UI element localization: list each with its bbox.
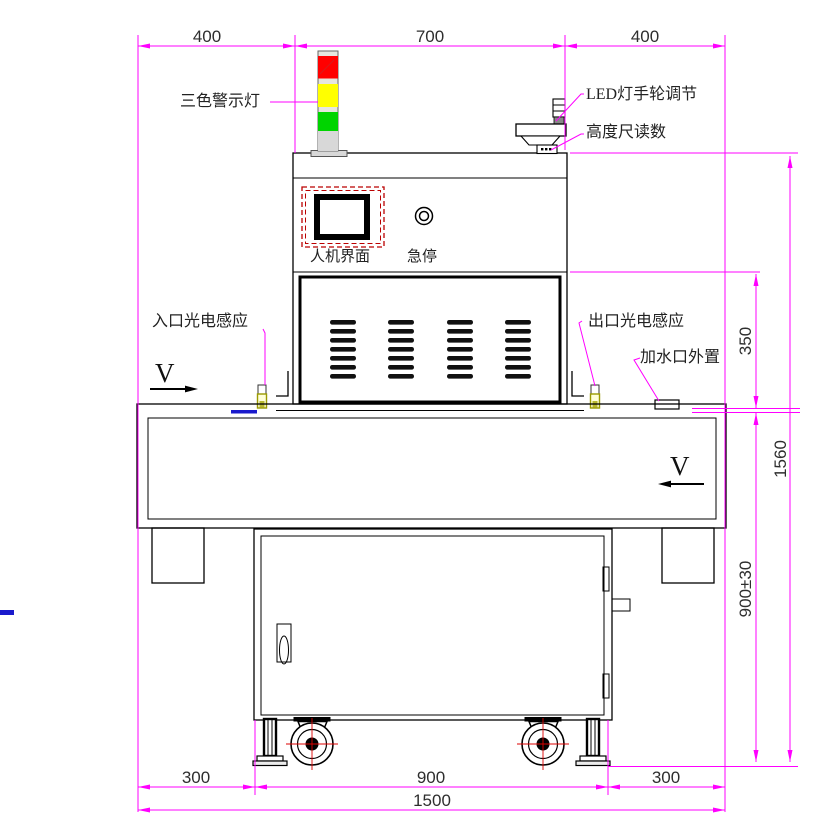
flow-arrowhead-left-pointing <box>658 481 671 488</box>
vented-cabinet <box>300 277 560 402</box>
flow-arrow-left: V <box>150 358 198 392</box>
warning-light-yellow-segment <box>318 84 338 107</box>
cabinet-door <box>261 536 604 715</box>
dim-top-left: 400 <box>193 27 221 46</box>
extension-lines <box>138 35 800 812</box>
left-leveling-foot <box>253 719 287 766</box>
outlet-rail-bracket <box>572 371 584 396</box>
label-warning-light: 三色警示灯 <box>180 92 260 110</box>
right-support-block <box>662 528 714 583</box>
hmi-screen <box>302 187 384 247</box>
tower-post <box>318 131 338 151</box>
dim-right-upper: 350 <box>736 327 755 355</box>
flow-letter-right: V <box>670 451 690 481</box>
dimension-lines <box>138 46 790 810</box>
door-handle <box>277 624 291 662</box>
handwheel-knob <box>553 99 565 117</box>
dim-right-lower: 900±30 <box>736 561 755 618</box>
warning-light-green-segment <box>318 112 338 131</box>
inlet-rail-bracket <box>276 371 288 396</box>
label-outlet-sensor: 出口光电感应 <box>588 311 684 330</box>
hmi-display <box>317 197 367 237</box>
label-water-port: 加水口外置 <box>640 348 720 366</box>
label-emergency-stop: 急停 <box>407 248 437 265</box>
emergency-stop-button <box>416 208 433 225</box>
flow-arrow-right: V <box>658 451 704 487</box>
blue-mark-table <box>231 410 257 414</box>
machine-front-view-drawing: V V <box>0 0 836 828</box>
lower-cabinet <box>254 529 630 720</box>
dim-top-center: 700 <box>416 27 444 46</box>
left-caster-wheel <box>286 717 338 770</box>
right-leveling-foot <box>576 719 610 766</box>
dim-bottom-total: 1500 <box>413 791 451 810</box>
conveyor-table <box>137 404 726 528</box>
dim-bottom-center: 900 <box>417 768 445 787</box>
handwheel-assembly <box>516 99 566 154</box>
door-latch <box>612 599 630 611</box>
warning-light-red-segment <box>318 56 338 79</box>
blue-mark-left-edge <box>0 610 14 615</box>
label-inlet-sensor: 入口光电感应 <box>152 311 248 330</box>
left-support-block <box>152 528 204 583</box>
dim-bottom-left: 300 <box>182 768 210 787</box>
dim-bottom-right: 300 <box>652 768 680 787</box>
label-height-gauge: 高度尺读数 <box>586 123 666 141</box>
dim-right-total: 1560 <box>771 440 790 478</box>
right-caster-wheel <box>517 717 569 770</box>
warning-light-tower <box>311 51 347 157</box>
dim-top-right: 400 <box>631 27 659 46</box>
handwheel-disc <box>516 124 566 136</box>
dimension-arrowheads <box>138 44 793 813</box>
label-led-handwheel: LED灯手轮调节 <box>586 85 697 103</box>
label-hmi: 人机界面 <box>310 248 370 265</box>
flow-letter-left: V <box>155 358 175 388</box>
flow-arrowhead-right-pointing <box>185 386 198 393</box>
